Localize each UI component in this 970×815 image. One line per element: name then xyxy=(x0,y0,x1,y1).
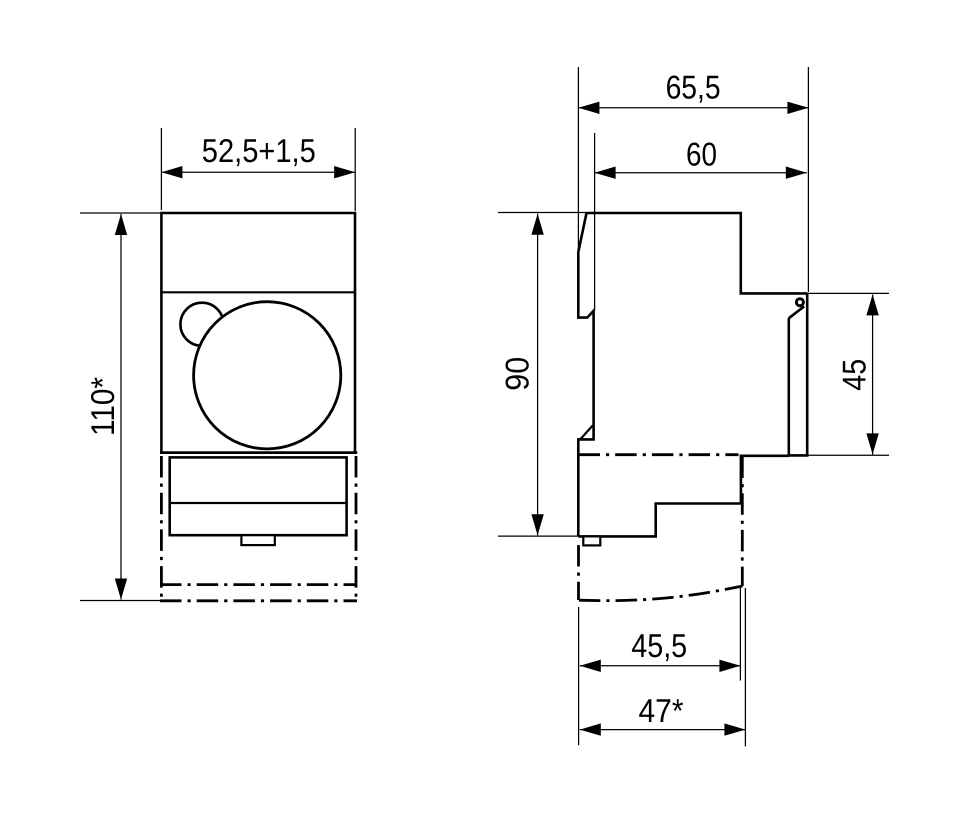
svg-text:45,5: 45,5 xyxy=(631,627,687,664)
svg-text:110*: 110* xyxy=(84,377,121,436)
svg-text:90: 90 xyxy=(499,357,536,391)
svg-text:47*: 47* xyxy=(639,692,684,729)
svg-text:52,5+1,5: 52,5+1,5 xyxy=(202,132,316,169)
svg-text:45: 45 xyxy=(835,359,872,391)
svg-text:65,5: 65,5 xyxy=(666,68,721,105)
svg-text:60: 60 xyxy=(686,135,717,172)
